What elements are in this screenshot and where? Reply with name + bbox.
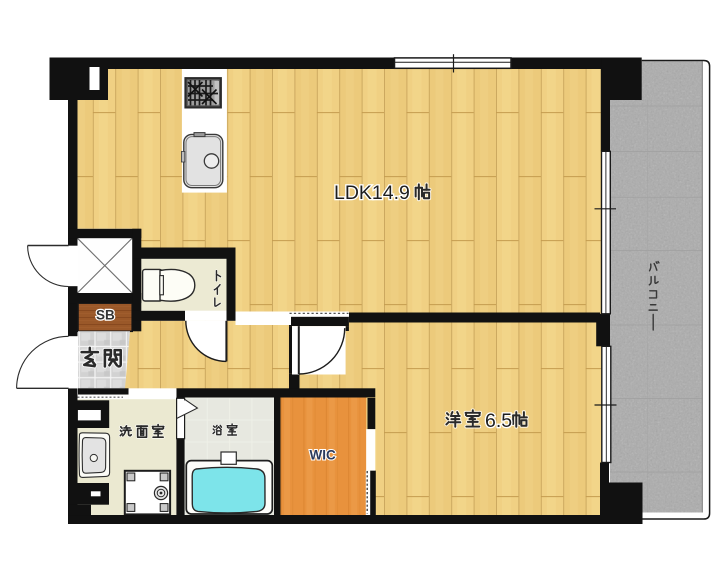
svg-text:SB: SB: [96, 308, 115, 323]
svg-text:LDK14.9: LDK14.9: [334, 182, 410, 204]
svg-text:WIC: WIC: [310, 448, 336, 463]
svg-text:6.5: 6.5: [485, 410, 512, 432]
